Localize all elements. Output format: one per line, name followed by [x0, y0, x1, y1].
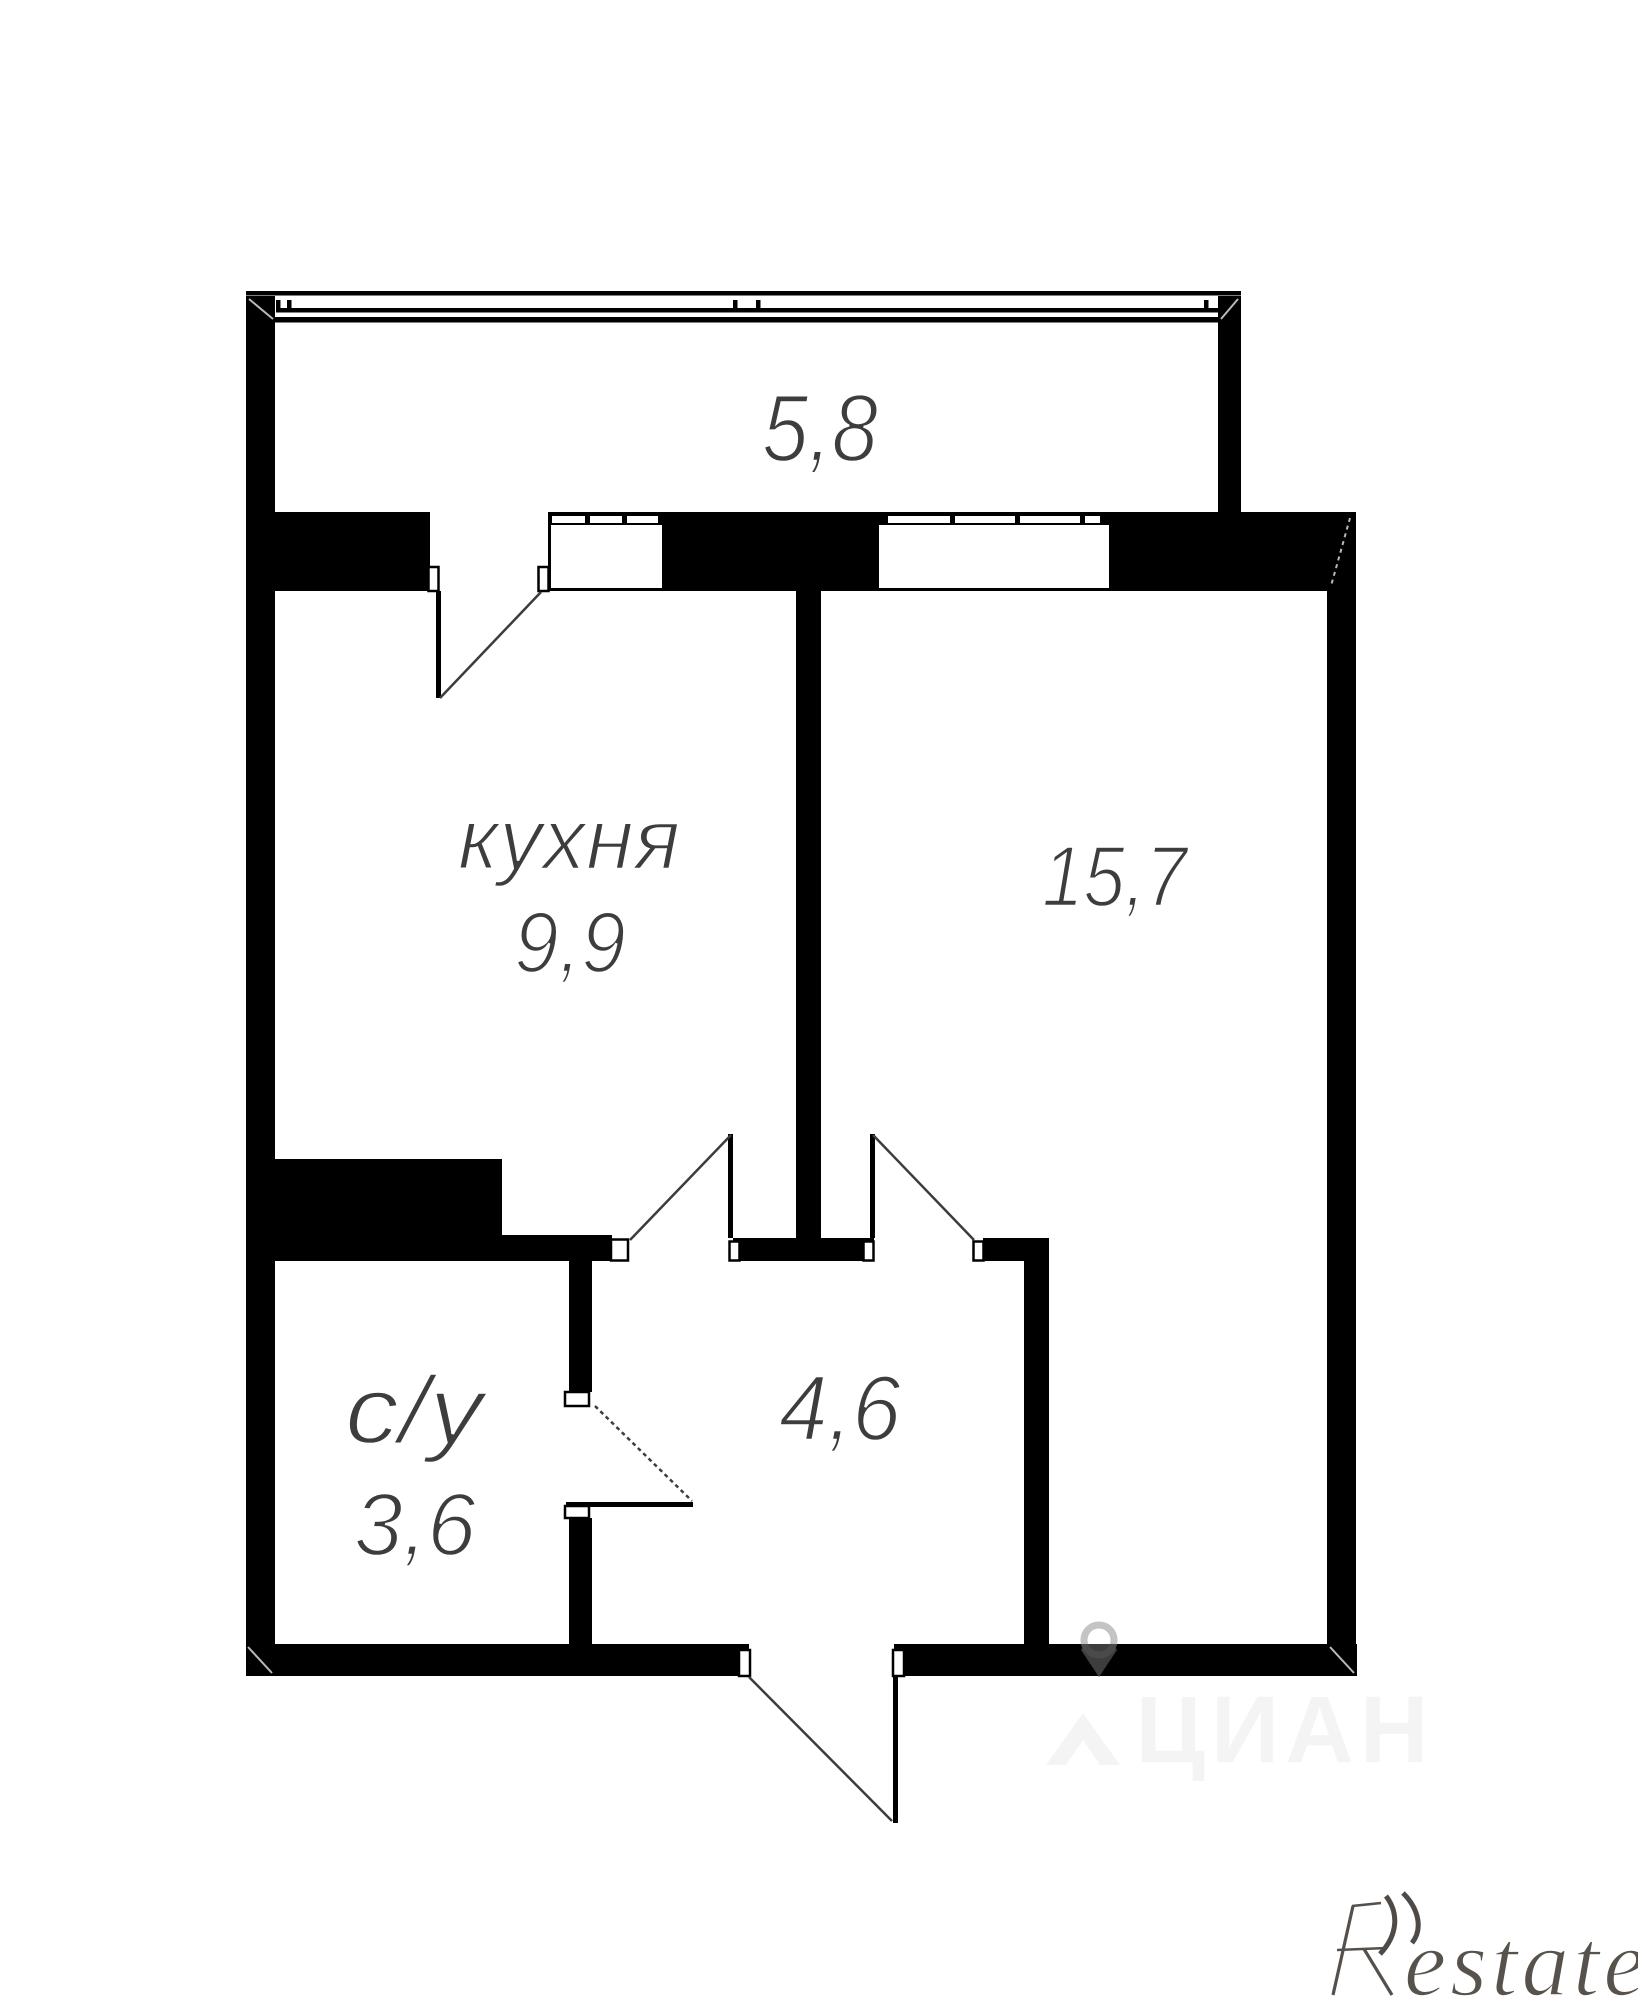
svg-text:3,6: 3,6 [354, 1474, 476, 1574]
svg-text:ЦИАН: ЦИАН [1136, 1677, 1435, 1783]
svg-text:15,7: 15,7 [1042, 829, 1190, 925]
svg-text:4,6: 4,6 [779, 1356, 901, 1460]
svg-text:9,9: 9,9 [514, 895, 626, 991]
svg-text:estate: estate [1404, 1910, 1638, 2000]
svg-text:кухня: кухня [458, 791, 680, 888]
svg-text:с/у: с/у [345, 1357, 489, 1464]
svg-text:5,8: 5,8 [762, 375, 878, 482]
